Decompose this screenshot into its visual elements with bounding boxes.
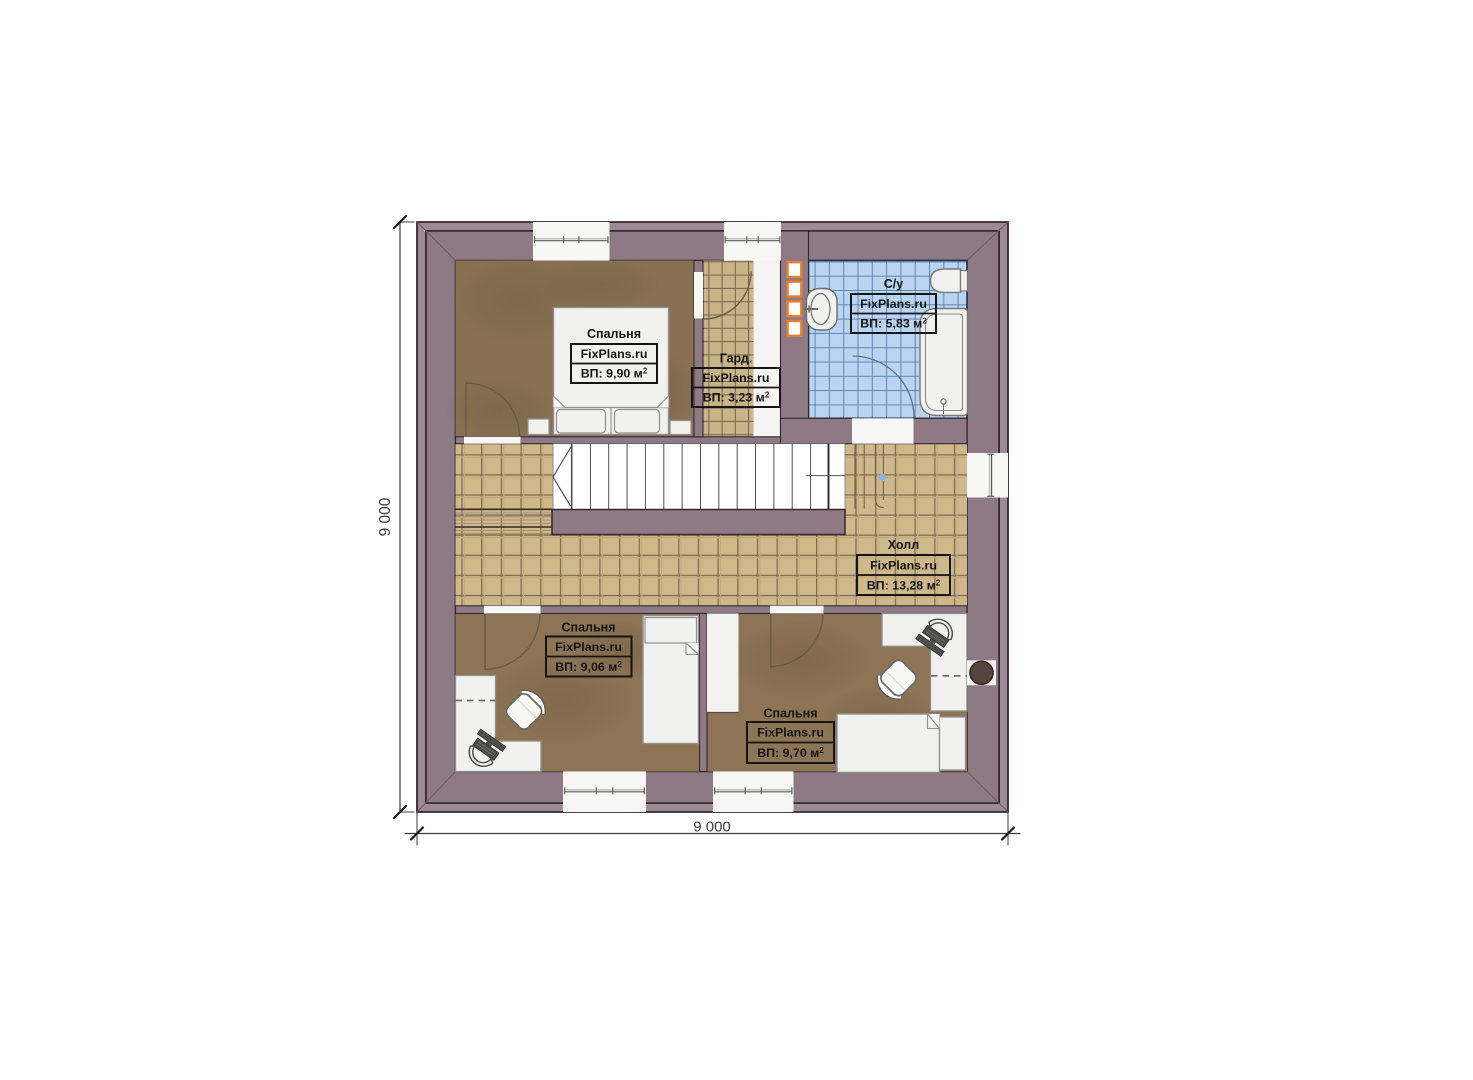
svg-text:С/у: С/у	[884, 277, 904, 291]
svg-text:FixPlans.ru: FixPlans.ru	[870, 558, 937, 572]
svg-text:ВП: 9,70 м2: ВП: 9,70 м2	[757, 746, 824, 760]
svg-text:ВП: 9,90 м2: ВП: 9,90 м2	[581, 367, 648, 381]
svg-text:FixPlans.ru: FixPlans.ru	[757, 726, 824, 740]
svg-text:Спальня: Спальня	[562, 621, 616, 635]
svg-text:Гард.: Гард.	[720, 352, 753, 366]
svg-text:ВП: 13,28 м2: ВП: 13,28 м2	[867, 578, 941, 592]
svg-text:FixPlans.ru: FixPlans.ru	[703, 371, 770, 385]
svg-text:ВП: 9,06 м2: ВП: 9,06 м2	[555, 660, 622, 674]
svg-text:Спальня: Спальня	[764, 707, 818, 721]
svg-text:9 000: 9 000	[377, 497, 394, 536]
svg-text:9 000: 9 000	[693, 819, 731, 836]
svg-text:FixPlans.ru: FixPlans.ru	[581, 347, 648, 361]
svg-text:ВП: 5,83 м2: ВП: 5,83 м2	[860, 317, 927, 331]
svg-text:Спальня: Спальня	[587, 327, 641, 341]
svg-text:FixPlans.ru: FixPlans.ru	[555, 640, 622, 654]
svg-text:Холл: Холл	[888, 538, 919, 552]
svg-text:FixPlans.ru: FixPlans.ru	[860, 297, 927, 311]
svg-text:ВП: 3,23 м2: ВП: 3,23 м2	[703, 391, 770, 405]
